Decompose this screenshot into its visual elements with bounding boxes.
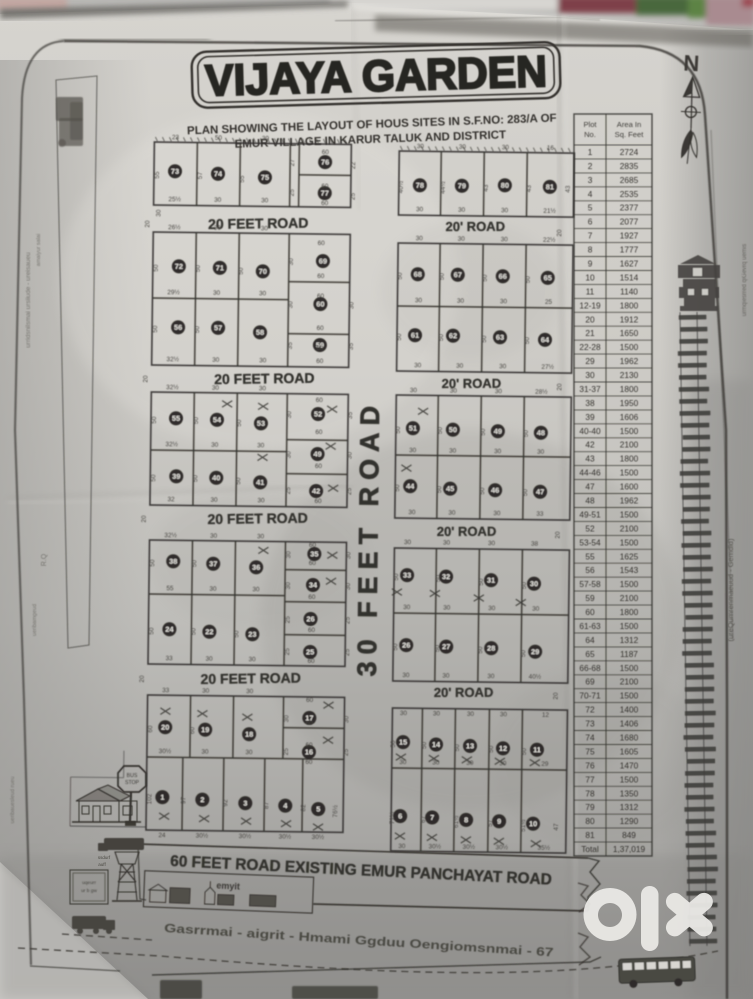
svg-text:56: 56 [585,565,595,575]
svg-text:30: 30 [495,388,503,395]
svg-text:30: 30 [501,236,509,243]
svg-text:12: 12 [542,712,550,719]
svg-text:22-28: 22-28 [579,342,601,352]
svg-text:30: 30 [398,843,406,850]
svg-text:30: 30 [488,540,496,547]
svg-text:64: 64 [585,635,595,645]
svg-text:55: 55 [585,551,595,561]
svg-text:73: 73 [585,719,595,729]
svg-text:ur b gw: ur b gw [81,888,97,894]
svg-text:50: 50 [152,325,159,333]
svg-text:57: 57 [487,819,494,827]
svg-text:30: 30 [443,540,451,547]
svg-text:10: 10 [529,819,537,828]
svg-text:44½: 44½ [439,181,447,194]
svg-text:50: 50 [194,326,201,334]
svg-text:50: 50 [520,650,527,658]
svg-text:30: 30 [493,510,501,517]
svg-text:1500: 1500 [620,579,639,589]
svg-text:50: 50 [482,274,489,282]
svg-text:22: 22 [350,161,357,169]
svg-text:14: 14 [432,740,441,749]
svg-text:30: 30 [403,604,411,611]
svg-text:49: 49 [313,450,321,459]
svg-text:30: 30 [456,363,464,370]
svg-text:3: 3 [243,799,247,808]
svg-text:30: 30 [345,582,352,590]
svg-text:30: 30 [450,388,458,395]
svg-text:ueribauesleud rueu: ueribauesleud rueu [10,776,16,823]
svg-text:40: 40 [212,473,220,482]
svg-text:29½: 29½ [167,288,180,296]
svg-text:1650: 1650 [620,328,639,338]
svg-text:30: 30 [259,385,267,392]
svg-text:30: 30 [246,688,254,695]
svg-text:30: 30 [252,586,260,593]
svg-text:41: 41 [256,478,264,487]
svg-text:51: 51 [409,424,417,433]
svg-text:25: 25 [343,748,350,756]
svg-text:27: 27 [442,642,450,651]
svg-text:12: 12 [499,744,507,753]
svg-text:26½: 26½ [168,223,181,231]
svg-text:1500: 1500 [620,691,639,701]
svg-text:60: 60 [321,200,329,207]
svg-text:30: 30 [448,510,456,517]
svg-text:30: 30 [259,357,267,364]
svg-text:30: 30 [416,235,424,242]
svg-text:43: 43 [565,185,572,193]
svg-text:30: 30 [433,710,441,717]
svg-text:44: 44 [406,482,415,491]
svg-text:1625: 1625 [620,551,639,561]
svg-text:42: 42 [312,487,320,496]
svg-text:59: 59 [585,593,595,603]
svg-text:65: 65 [585,649,595,659]
svg-text:58: 58 [256,328,264,337]
svg-text:30: 30 [343,715,350,723]
svg-text:2100: 2100 [620,440,639,450]
svg-text:2130: 2130 [620,370,639,380]
svg-text:54: 54 [213,415,222,424]
svg-text:32: 32 [167,496,175,503]
svg-text:20: 20 [139,675,146,683]
svg-text:60: 60 [305,742,313,749]
svg-text:1140: 1140 [620,286,638,296]
svg-text:30: 30 [210,533,218,540]
svg-text:30: 30 [501,207,509,214]
svg-text:1500: 1500 [620,342,639,352]
svg-text:64: 64 [541,335,550,344]
svg-text:73: 73 [171,167,179,176]
svg-text:30: 30 [404,539,412,546]
svg-text:30: 30 [347,451,354,459]
svg-text:50: 50 [395,426,402,434]
svg-text:67: 67 [454,270,462,279]
svg-text:35½: 35½ [538,844,551,852]
svg-text:80: 80 [585,816,595,826]
svg-text:60: 60 [316,358,324,365]
svg-text:70: 70 [259,267,267,276]
svg-text:32: 32 [442,572,450,581]
svg-text:1: 1 [588,147,593,157]
svg-text:43: 43 [526,185,533,193]
svg-text:55: 55 [166,585,174,592]
svg-text:38: 38 [531,541,539,548]
svg-text:30 FEET ROAD: 30 FEET ROAD [352,399,385,677]
svg-text:78: 78 [585,788,595,798]
svg-text:47: 47 [553,823,560,831]
svg-text:30: 30 [286,411,293,419]
svg-text:50: 50 [478,578,485,586]
svg-text:1312: 1312 [620,635,639,645]
svg-text:30: 30 [201,749,209,756]
svg-text:emyit: emyit [216,880,240,891]
svg-text:69: 69 [319,257,327,266]
svg-text:61-63: 61-63 [579,621,601,631]
svg-text:35: 35 [310,550,318,559]
svg-text:20: 20 [142,375,149,383]
svg-text:50: 50 [421,741,428,749]
svg-text:30: 30 [202,688,210,695]
svg-text:34: 34 [309,581,318,590]
svg-text:76½: 76½ [331,804,339,817]
svg-text:31-37: 31-37 [579,384,601,394]
svg-text:25: 25 [283,748,290,756]
svg-text:9: 9 [497,817,501,826]
svg-text:9: 9 [588,259,593,269]
svg-text:30½: 30½ [279,833,292,841]
svg-text:50: 50 [524,337,531,345]
svg-text:50: 50 [435,574,442,582]
svg-text:60: 60 [321,183,329,190]
svg-text:57: 57 [197,172,204,180]
svg-text:50: 50 [439,273,446,281]
svg-text:7: 7 [430,813,434,822]
svg-text:70-71: 70-71 [579,691,601,701]
svg-text:BUS: BUS [127,773,138,779]
svg-text:30: 30 [345,551,352,559]
svg-text:20: 20 [144,220,151,228]
svg-text:79: 79 [585,802,595,812]
svg-text:5: 5 [588,203,593,213]
svg-text:50: 50 [392,643,399,651]
svg-text:30: 30 [449,448,457,455]
svg-text:40-40: 40-40 [579,426,601,436]
svg-text:29: 29 [585,356,595,366]
svg-text:1606: 1606 [620,412,639,422]
svg-text:50: 50 [522,489,529,497]
svg-text:1,37,019: 1,37,019 [613,844,646,854]
svg-text:4: 4 [588,189,593,199]
svg-text:2100: 2100 [620,523,639,533]
svg-text:30: 30 [348,301,355,309]
svg-text:72: 72 [175,262,183,271]
svg-text:42: 42 [585,440,595,450]
svg-text:2100: 2100 [620,593,639,603]
svg-text:ssdurf: ssdurf [98,855,111,860]
svg-text:50: 50 [454,744,461,752]
svg-text:30: 30 [213,290,221,297]
svg-text:49-51: 49-51 [579,509,601,519]
svg-text:849: 849 [622,830,636,840]
svg-text:53: 53 [257,419,265,428]
svg-text:1500: 1500 [620,426,639,436]
svg-text:60: 60 [315,429,323,436]
svg-text:50: 50 [480,428,487,436]
svg-text:30: 30 [214,197,222,204]
svg-text:55: 55 [154,171,161,179]
svg-text:63: 63 [496,333,504,342]
svg-text:STOP: STOP [125,780,140,786]
svg-text:2377: 2377 [620,203,639,213]
svg-text:auff: auff [98,862,106,867]
svg-text:1290: 1290 [620,816,639,826]
svg-text:19: 19 [201,725,209,734]
svg-text:49: 49 [494,427,502,436]
svg-text:75: 75 [585,746,595,756]
svg-text:30: 30 [500,298,508,305]
svg-text:102: 102 [146,793,153,804]
svg-text:30½: 30½ [312,833,325,841]
svg-text:82: 82 [300,804,307,812]
svg-text:30: 30 [457,298,465,305]
svg-text:11: 11 [533,745,541,754]
svg-text:(ureQumrenmaeuud - Gemdld): (ureQumrenmaeuud - Gemdld) [726,538,735,641]
svg-text:60: 60 [318,240,326,247]
svg-text:30: 30 [285,582,292,590]
svg-text:61½: 61½ [452,815,460,828]
svg-text:30: 30 [416,206,424,213]
svg-text:30: 30 [257,533,265,540]
svg-text:18: 18 [245,730,253,739]
svg-text:R.Q: R.Q [41,553,48,566]
svg-text:32½: 32½ [166,355,179,363]
svg-text:60: 60 [306,720,314,727]
svg-text:40½: 40½ [529,673,542,681]
svg-text:20 FEET ROAD: 20 FEET ROAD [200,670,301,687]
svg-text:50: 50 [393,573,400,581]
svg-text:35: 35 [287,342,294,350]
svg-text:33: 33 [165,655,173,662]
svg-text:25: 25 [346,487,353,495]
svg-text:72: 72 [585,705,595,715]
svg-text:ueribamgeud: ueribamgeud [32,604,38,636]
svg-text:Total: Total [581,844,599,854]
svg-text:VIJAYA GARDEN: VIJAYA GARDEN [204,47,547,106]
svg-text:2: 2 [200,795,204,804]
svg-text:1470: 1470 [620,760,639,770]
svg-text:60: 60 [315,463,323,470]
svg-text:62: 62 [449,331,457,340]
svg-text:30: 30 [402,672,410,679]
svg-text:28: 28 [487,644,495,653]
svg-text:30: 30 [458,236,466,243]
svg-text:66: 66 [499,272,507,281]
svg-text:60: 60 [147,725,154,733]
svg-text:30: 30 [287,301,294,309]
svg-text:39: 39 [172,472,180,481]
svg-text:30: 30 [443,605,451,612]
svg-text:1800: 1800 [620,384,639,394]
svg-text:71: 71 [216,263,224,272]
svg-text:30: 30 [212,385,220,392]
svg-text:50: 50 [151,416,158,424]
svg-text:55: 55 [172,414,180,423]
svg-text:25: 25 [350,192,357,200]
svg-text:50: 50 [148,627,155,635]
svg-text:53-54: 53-54 [579,537,601,547]
svg-text:50: 50 [488,745,495,753]
svg-text:25½: 25½ [168,195,181,203]
svg-text:81: 81 [585,830,595,840]
svg-text:1800: 1800 [620,300,639,310]
svg-text:60: 60 [316,397,324,404]
svg-text:50: 50 [195,265,202,273]
svg-text:30: 30 [155,209,162,217]
svg-text:30: 30 [537,449,545,456]
svg-text:2724: 2724 [620,147,639,157]
svg-text:3: 3 [588,175,593,185]
svg-text:2835: 2835 [620,161,639,171]
svg-text:87: 87 [263,801,270,809]
svg-text:1500: 1500 [620,663,639,673]
svg-text:30½: 30½ [159,747,172,755]
svg-text:20' ROAD: 20' ROAD [434,685,494,700]
svg-text:75: 75 [261,173,269,182]
svg-text:20: 20 [553,692,560,700]
svg-text:25: 25 [284,648,291,656]
svg-text:1500: 1500 [620,468,639,478]
svg-text:30: 30 [211,442,219,449]
svg-text:26: 26 [402,641,410,650]
svg-text:30: 30 [499,363,507,370]
svg-text:1927: 1927 [620,231,639,241]
svg-text:6: 6 [588,217,593,227]
svg-text:92: 92 [222,799,229,807]
svg-text:1406: 1406 [620,719,639,729]
svg-text:8: 8 [464,816,468,825]
svg-text:1800: 1800 [620,454,639,464]
svg-text:32½: 32½ [165,440,178,448]
svg-text:1500: 1500 [620,537,639,547]
svg-text:27: 27 [289,159,296,167]
svg-text:30: 30 [500,711,508,718]
svg-text:20: 20 [556,383,563,391]
svg-text:60: 60 [316,345,324,352]
svg-text:45: 45 [446,484,454,493]
svg-text:74: 74 [214,169,223,178]
svg-text:56: 56 [174,323,182,332]
svg-text:amaiyur salai: amaiyur salai [36,234,42,266]
svg-text:97: 97 [180,796,187,804]
svg-text:60: 60 [308,627,316,634]
svg-text:24: 24 [158,832,166,839]
svg-text:1312: 1312 [620,802,639,812]
svg-text:N: N [683,51,700,77]
svg-text:13: 13 [466,742,474,751]
svg-text:48: 48 [585,496,595,506]
svg-text:33: 33 [162,687,170,694]
svg-text:29: 29 [541,761,549,768]
svg-text:30: 30 [585,370,595,380]
svg-text:25: 25 [545,299,553,306]
svg-text:80: 80 [501,181,509,190]
svg-text:31: 31 [487,576,495,585]
svg-text:50: 50 [479,487,486,495]
svg-text:25: 25 [344,648,351,656]
svg-text:30: 30 [442,673,450,680]
svg-text:23: 23 [248,630,256,639]
svg-text:30: 30 [261,197,269,204]
svg-text:20: 20 [141,515,148,523]
svg-text:2685: 2685 [620,175,639,185]
svg-text:33: 33 [403,571,411,580]
svg-text:55: 55 [239,175,246,183]
svg-text:60: 60 [309,560,317,567]
svg-text:43: 43 [585,454,595,464]
svg-text:1500: 1500 [620,509,639,519]
svg-text:1962: 1962 [620,356,639,366]
svg-text:30: 30 [261,225,269,232]
svg-text:30: 30 [288,258,295,266]
svg-text:50: 50 [149,559,156,567]
svg-text:20 FEET ROAD: 20 FEET ROAD [207,510,308,527]
svg-text:30: 30 [285,551,292,559]
svg-text:1600: 1600 [620,482,639,492]
svg-text:urmqiesrred qiGevrq uemis: urmqiesrred qiGevrq uemis [742,244,748,316]
svg-text:76: 76 [321,158,329,167]
svg-text:78: 78 [416,181,424,190]
svg-text:38: 38 [585,398,595,408]
svg-text:50: 50 [191,560,198,568]
svg-text:47: 47 [585,482,595,492]
svg-text:30: 30 [488,605,496,612]
svg-text:30½: 30½ [463,843,476,851]
svg-text:2100: 2100 [620,677,639,687]
svg-text:60: 60 [585,607,595,617]
svg-text:30: 30 [409,447,417,454]
svg-text:1: 1 [160,793,164,802]
svg-text:5: 5 [316,805,320,814]
svg-text:30: 30 [432,759,440,766]
svg-text:20: 20 [555,531,562,539]
svg-text:33: 33 [536,511,544,518]
svg-text:1912: 1912 [620,314,639,324]
svg-text:46: 46 [491,486,499,495]
svg-text:65: 65 [544,273,552,282]
svg-text:30: 30 [209,586,217,593]
svg-text:1514: 1514 [620,272,639,282]
svg-text:30: 30 [467,711,475,718]
svg-text:30: 30 [414,362,422,369]
svg-text:48: 48 [537,428,545,437]
svg-text:30: 30 [408,509,416,516]
svg-text:7: 7 [588,231,593,241]
svg-text:21½: 21½ [543,207,556,215]
svg-text:30: 30 [283,715,290,723]
svg-text:15: 15 [399,738,407,747]
svg-text:71½: 71½ [388,811,396,824]
svg-text:30: 30 [245,749,253,756]
svg-text:10: 10 [585,272,595,282]
svg-text:50: 50 [394,484,401,492]
svg-text:30: 30 [262,135,270,142]
svg-text:6: 6 [398,812,402,821]
svg-text:50: 50 [525,276,532,284]
svg-text:21: 21 [585,328,595,338]
svg-text:20' ROAD: 20' ROAD [446,219,506,234]
